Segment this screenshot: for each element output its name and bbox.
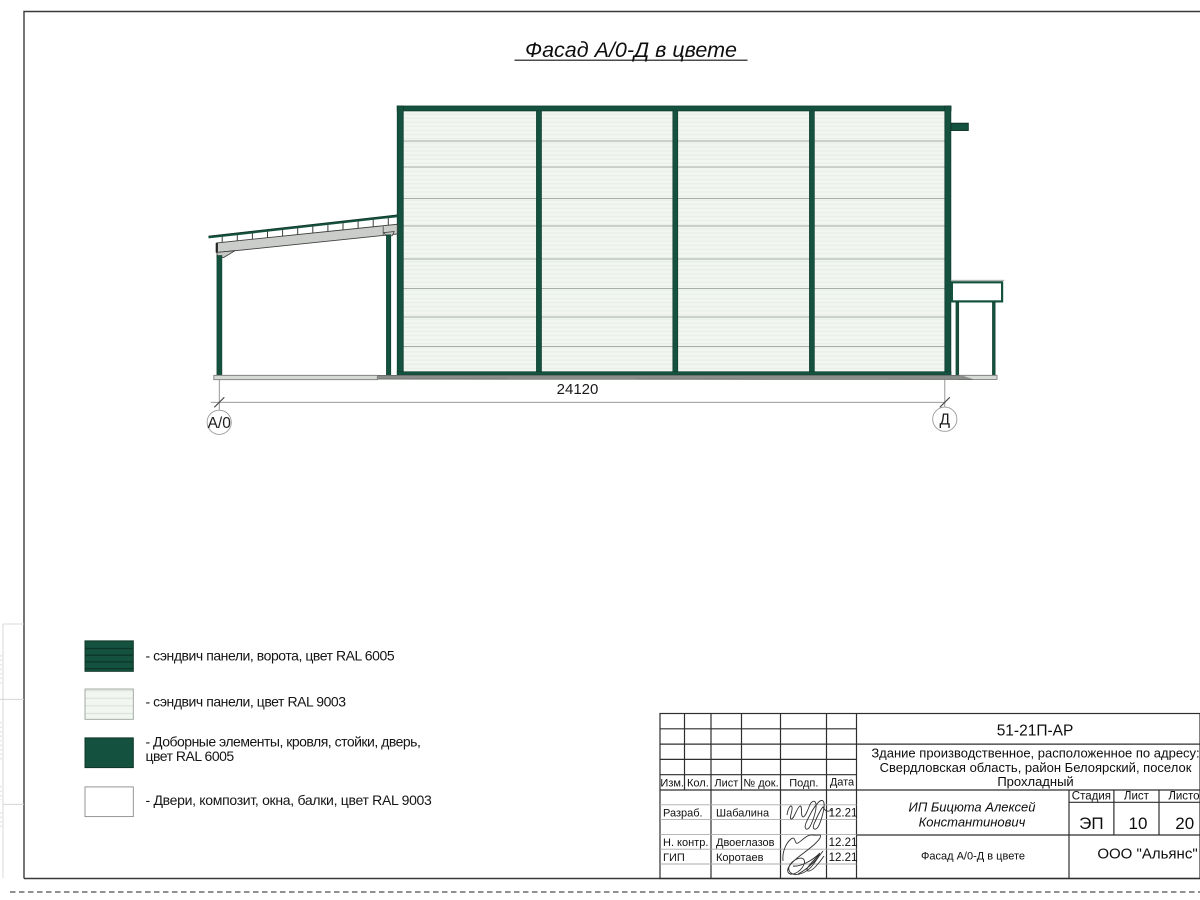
svg-text:Фасад А/0-Д в цвете: Фасад А/0-Д в цвете (921, 851, 1025, 863)
svg-text:Стадия: Стадия (1072, 791, 1111, 803)
svg-text:А/0: А/0 (208, 415, 232, 432)
svg-text:12.21: 12.21 (829, 837, 858, 849)
svg-text:Константинович: Константинович (919, 815, 1026, 830)
svg-text:Кол.: Кол. (687, 777, 709, 789)
svg-text:ЭП: ЭП (1079, 814, 1103, 833)
svg-text:- сэндвич панели, ворота, цвет: - сэндвич панели, ворота, цвет RAL 6005 (146, 648, 395, 664)
svg-text:Лист: Лист (1124, 791, 1150, 803)
svg-text:цвет RAL 6005: цвет RAL 6005 (146, 748, 235, 764)
svg-text:Прохладный: Прохладный (997, 774, 1073, 789)
svg-text:Подп.: Подп. (789, 777, 818, 789)
svg-text:ГИП: ГИП (663, 852, 685, 864)
svg-text:ООО "Альянс": ООО "Альянс" (1097, 846, 1197, 863)
svg-text:20: 20 (1175, 814, 1194, 833)
svg-text:Листов: Листов (1168, 791, 1200, 803)
svg-text:- сэндвич панели, цвет RAL 900: - сэндвич панели, цвет RAL 9003 (146, 694, 347, 710)
svg-text:12.21: 12.21 (829, 808, 858, 820)
svg-text:Двоеглазов: Двоеглазов (716, 837, 775, 849)
svg-text:51-21П-АР: 51-21П-АР (997, 723, 1074, 740)
svg-text:№ док.: № док. (743, 777, 778, 789)
svg-text:Свердловская область, район Бе: Свердловская область, район Белоярский, … (880, 760, 1192, 775)
svg-text:24120: 24120 (557, 381, 599, 398)
svg-text:- Двери, композит, окна, балки: - Двери, композит, окна, балки, цвет RAL… (146, 792, 433, 808)
svg-text:Лист: Лист (714, 777, 738, 789)
svg-text:Изм.: Изм. (660, 777, 684, 789)
svg-text:ИП Бицюта Алексей: ИП Бицюта Алексей (909, 800, 1036, 815)
svg-text:Н. контр.: Н. контр. (663, 837, 708, 849)
svg-text:10: 10 (1129, 814, 1148, 833)
svg-text:Разраб.: Разраб. (663, 808, 703, 820)
svg-text:Дата: Дата (830, 776, 855, 788)
svg-text:Фасад А/0-Д в цвете: Фасад А/0-Д в цвете (525, 38, 737, 62)
svg-text:Здание производственное, распо: Здание производственное, расположенное п… (871, 746, 1199, 761)
svg-text:Д: Д (940, 412, 951, 429)
svg-text:12.21: 12.21 (829, 852, 858, 864)
svg-text:- Доборные элементы, кровля, с: - Доборные элементы, кровля, стойки, две… (146, 734, 421, 750)
svg-text:Коротаев: Коротаев (716, 852, 764, 864)
svg-text:Шабалина: Шабалина (716, 808, 770, 820)
